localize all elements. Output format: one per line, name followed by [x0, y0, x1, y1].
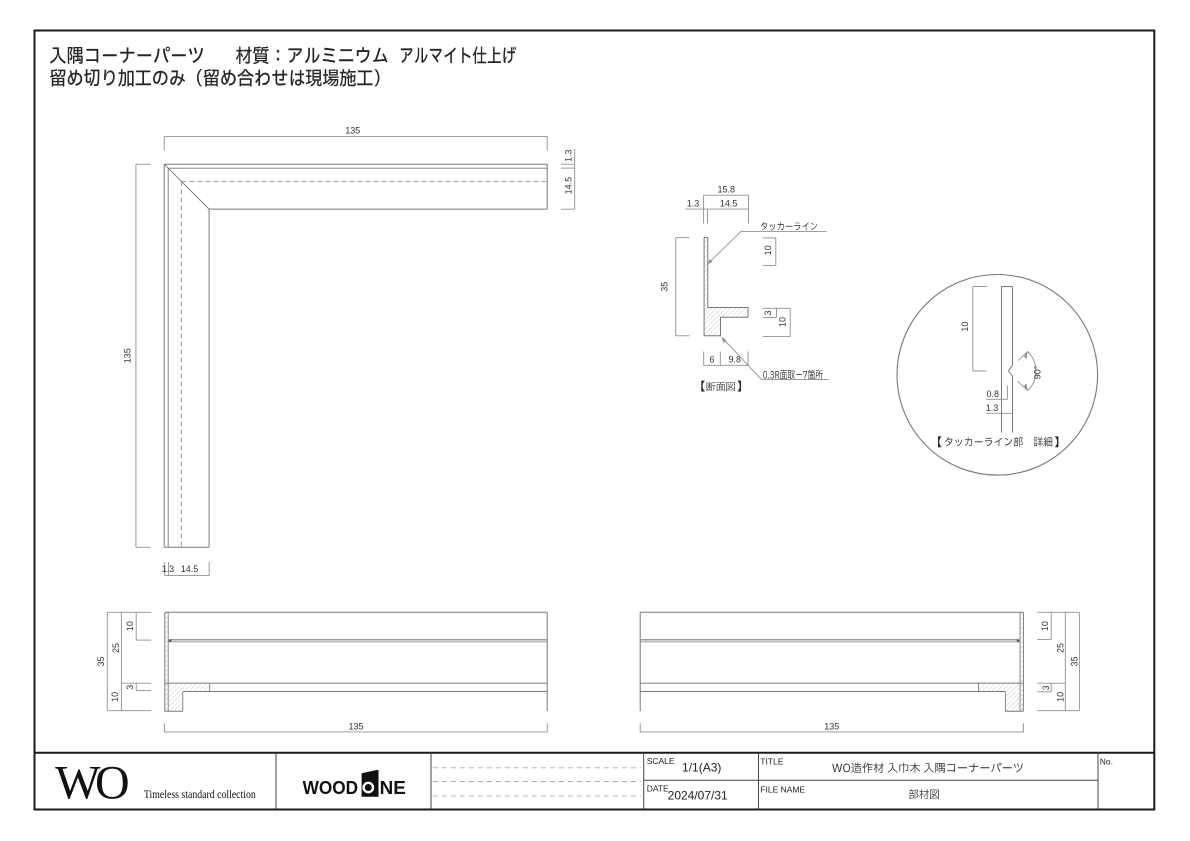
svg-text:35: 35 — [96, 656, 106, 666]
svg-text:14.5: 14.5 — [181, 564, 199, 574]
svg-text:35: 35 — [1069, 656, 1079, 666]
svg-text:10: 10 — [778, 317, 788, 327]
svg-text:1.3: 1.3 — [564, 149, 574, 162]
svg-text:25: 25 — [111, 643, 121, 653]
svg-text:6: 6 — [709, 355, 714, 365]
svg-text:10: 10 — [763, 245, 773, 255]
svg-text:10: 10 — [960, 322, 970, 332]
svg-text:10: 10 — [125, 621, 135, 631]
svg-text:0.8: 0.8 — [986, 389, 999, 399]
svg-text:WO: WO — [55, 756, 130, 809]
svg-text:10: 10 — [1056, 692, 1066, 702]
svg-text:3: 3 — [763, 310, 773, 315]
svg-text:14.5: 14.5 — [564, 177, 574, 195]
svg-text:135: 135 — [345, 126, 360, 136]
svg-text:1/1(A3): 1/1(A3) — [682, 761, 721, 775]
svg-text:TITLE: TITLE — [760, 756, 783, 766]
svg-text:NE: NE — [380, 777, 406, 798]
svg-text:35: 35 — [659, 282, 669, 292]
svg-text:135: 135 — [348, 721, 363, 731]
svg-text:1.3: 1.3 — [687, 199, 700, 209]
svg-text:3: 3 — [1041, 685, 1051, 690]
svg-text:14.5: 14.5 — [720, 199, 738, 209]
svg-text:25: 25 — [1056, 643, 1066, 653]
svg-text:1.3: 1.3 — [162, 564, 175, 574]
svg-text:No.: No. — [1100, 756, 1113, 766]
svg-text:FILE NAME: FILE NAME — [760, 785, 805, 795]
svg-text:135: 135 — [824, 721, 839, 731]
svg-text:1.3: 1.3 — [986, 403, 999, 413]
svg-text:135: 135 — [123, 348, 133, 363]
svg-text:WOOD: WOOD — [303, 777, 359, 798]
svg-text:15.8: 15.8 — [718, 185, 736, 195]
svg-text:SCALE: SCALE — [647, 756, 675, 766]
svg-text:10: 10 — [110, 692, 120, 702]
svg-text:90°: 90° — [1033, 365, 1043, 379]
svg-text:3: 3 — [125, 685, 135, 690]
svg-text:10: 10 — [1040, 621, 1050, 631]
svg-text:DATE: DATE — [647, 784, 669, 794]
svg-text:Timeless standard collection: Timeless standard collection — [144, 787, 256, 801]
svg-text:2024/07/31: 2024/07/31 — [668, 789, 728, 803]
